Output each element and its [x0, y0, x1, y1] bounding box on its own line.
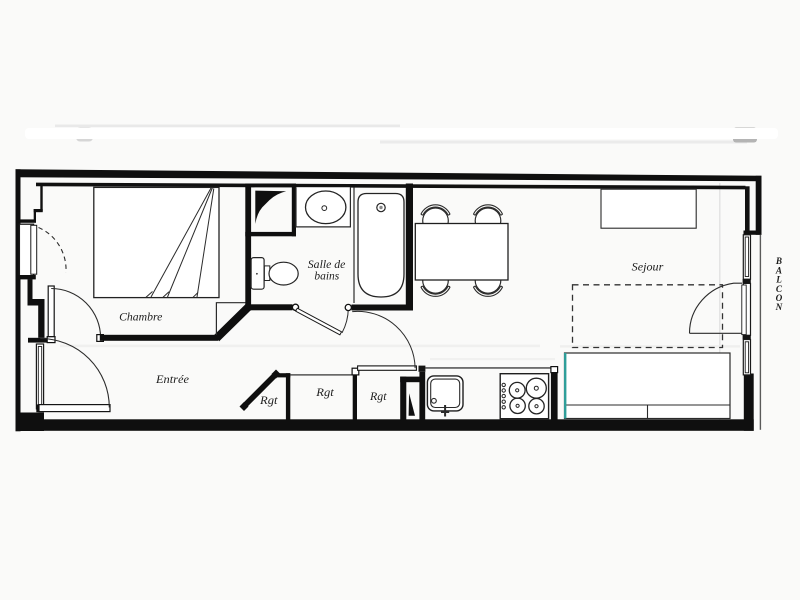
svg-text:bains: bains	[314, 268, 339, 282]
svg-text:Entrée: Entrée	[155, 372, 190, 386]
svg-text:Rgt: Rgt	[369, 389, 387, 403]
svg-text:Rgt: Rgt	[259, 393, 278, 407]
svg-text:Chambre: Chambre	[119, 310, 163, 324]
svg-text:Rgt: Rgt	[315, 385, 334, 399]
svg-text:Sejour: Sejour	[632, 259, 664, 273]
svg-text:N: N	[775, 302, 783, 312]
